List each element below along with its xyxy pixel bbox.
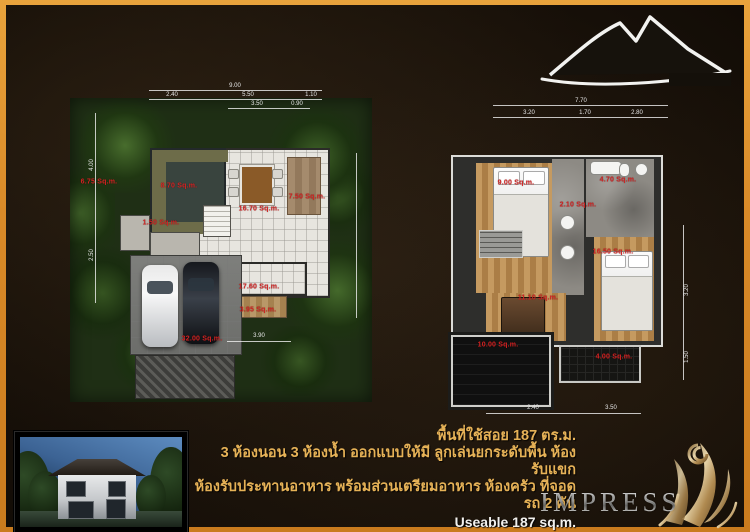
room-area-label: 6.75 Sq.m. — [81, 179, 118, 186]
house-render-thumbnail — [14, 431, 188, 532]
dimension-label: 3.50 — [251, 101, 263, 107]
dimension-line — [95, 113, 96, 303]
dimension-label: 1.70 — [579, 110, 591, 116]
dimension-label: 4.00 — [89, 159, 95, 171]
staircase — [203, 205, 231, 237]
dimension-label: 3.90 — [253, 333, 265, 339]
room-area-label: 17.60 Sq.m. — [239, 284, 280, 291]
sink-fixture — [560, 245, 575, 260]
dimension-label: 2.80 — [631, 110, 643, 116]
room-area-label: 16.50 Sq.m. — [593, 249, 634, 256]
bathtub — [590, 161, 622, 175]
master-bed — [601, 251, 653, 331]
toilet-fixture — [619, 163, 630, 177]
dimension-label: 2.40 — [527, 405, 539, 411]
dimension-label: 3.20 — [523, 110, 535, 116]
english-usable-area-line: Useable 187 sq.m. — [184, 514, 576, 531]
dimension-line — [493, 105, 668, 106]
toilet-fixture — [560, 215, 575, 230]
house-window — [66, 481, 86, 497]
dimension-label: 3.50 — [605, 405, 617, 411]
house-window — [68, 501, 94, 519]
mountain-icon — [536, 9, 736, 97]
room-area-label: 32.00 Sq.m. — [182, 336, 223, 343]
dimension-label: 2.40 — [166, 92, 178, 98]
room-area-label: 10.00 Sq.m. — [478, 342, 519, 349]
dimension-line — [486, 413, 641, 414]
coco-hill-logo — [536, 9, 736, 97]
dimension-label: 3.20 — [684, 284, 690, 296]
dimension-line — [356, 153, 357, 318]
dimension-line — [149, 90, 322, 91]
impress-logo: IMPRESS — [532, 429, 738, 532]
thai-usable-area-line: พื้นที่ใช้สอย 187 ตร.ม. — [184, 428, 576, 445]
bed — [501, 297, 545, 339]
house-window — [108, 481, 126, 497]
dimension-label: 7.70 — [575, 98, 587, 104]
terrace-area — [287, 157, 321, 215]
first-floor-plan: 9.00 2.40 5.50 1.10 3.50 0.90 4.00 2.50 … — [65, 85, 385, 425]
staircase — [479, 230, 523, 258]
dimension-label: 9.00 — [229, 83, 241, 89]
bathroom-2 — [586, 159, 654, 237]
driveway — [135, 355, 235, 399]
house-photo — [20, 437, 182, 527]
brochure-page: 9.00 2.40 5.50 1.10 3.50 0.90 4.00 2.50 … — [0, 0, 750, 532]
publisher-name: IMPRESS — [540, 487, 681, 518]
room-area-label: 1.50 Sq.m. — [143, 220, 180, 227]
chair — [228, 187, 239, 197]
room-area-label: 4.70 Sq.m. — [600, 177, 637, 184]
dimension-label: 5.50 — [242, 92, 254, 98]
chair — [272, 169, 283, 179]
dimension-line — [493, 117, 668, 118]
kitchen-counter — [166, 150, 228, 162]
pillow — [628, 255, 649, 268]
dimension-label: 1.10 — [305, 92, 317, 98]
thai-features-line-1: 3 ห้องนอน 3 ห้องน้ำ ออกแบบให้มี ลูกเล่นย… — [184, 445, 576, 479]
dimension-line — [228, 108, 310, 109]
dimension-line — [227, 341, 291, 342]
chair — [228, 169, 239, 179]
page-background: 9.00 2.40 5.50 1.10 3.50 0.90 4.00 2.50 … — [6, 5, 744, 527]
dimension-line — [149, 99, 322, 100]
room-area-label: 16.70 Sq.m. — [239, 206, 280, 213]
thai-features-line-2: ห้องรับประทานอาหาร พร้อมส่วนเตรียมอาหาร … — [184, 479, 576, 513]
description-text-block: พื้นที่ใช้สอย 187 ตร.ม. 3 ห้องนอน 3 ห้อง… — [184, 428, 576, 532]
dining-table — [240, 165, 274, 205]
dimension-label: 0.90 — [291, 101, 303, 107]
house-roof — [48, 459, 146, 476]
dimension-label: 2.50 — [89, 249, 95, 261]
room-area-label: 4.00 Sq.m. — [596, 354, 633, 361]
second-floor-plan: 7.70 3.20 1.70 2.80 3.20 1.50 2.40 3.50 … — [441, 95, 750, 425]
house-door — [106, 499, 126, 519]
room-area-label: 7.50 Sq.m. — [289, 194, 326, 201]
chair — [272, 187, 283, 197]
blanket — [602, 276, 652, 330]
room-area-label: 2.10 Sq.m. — [560, 202, 597, 209]
car-windshield — [147, 281, 173, 294]
pillow — [605, 255, 626, 268]
room-area-label: 11.10 Sq.m. — [518, 295, 558, 302]
white-car — [142, 265, 178, 347]
room-area-label: 8.70 Sq.m. — [161, 183, 198, 190]
dimension-label: 1.50 — [684, 351, 690, 363]
room-area-label: 3.95 Sq.m. — [240, 307, 277, 314]
balcony — [559, 345, 641, 383]
sink-fixture — [635, 163, 648, 176]
dark-car — [183, 262, 219, 344]
car-windshield — [188, 278, 214, 291]
room-area-label: 9.00 Sq.m. — [498, 180, 535, 187]
